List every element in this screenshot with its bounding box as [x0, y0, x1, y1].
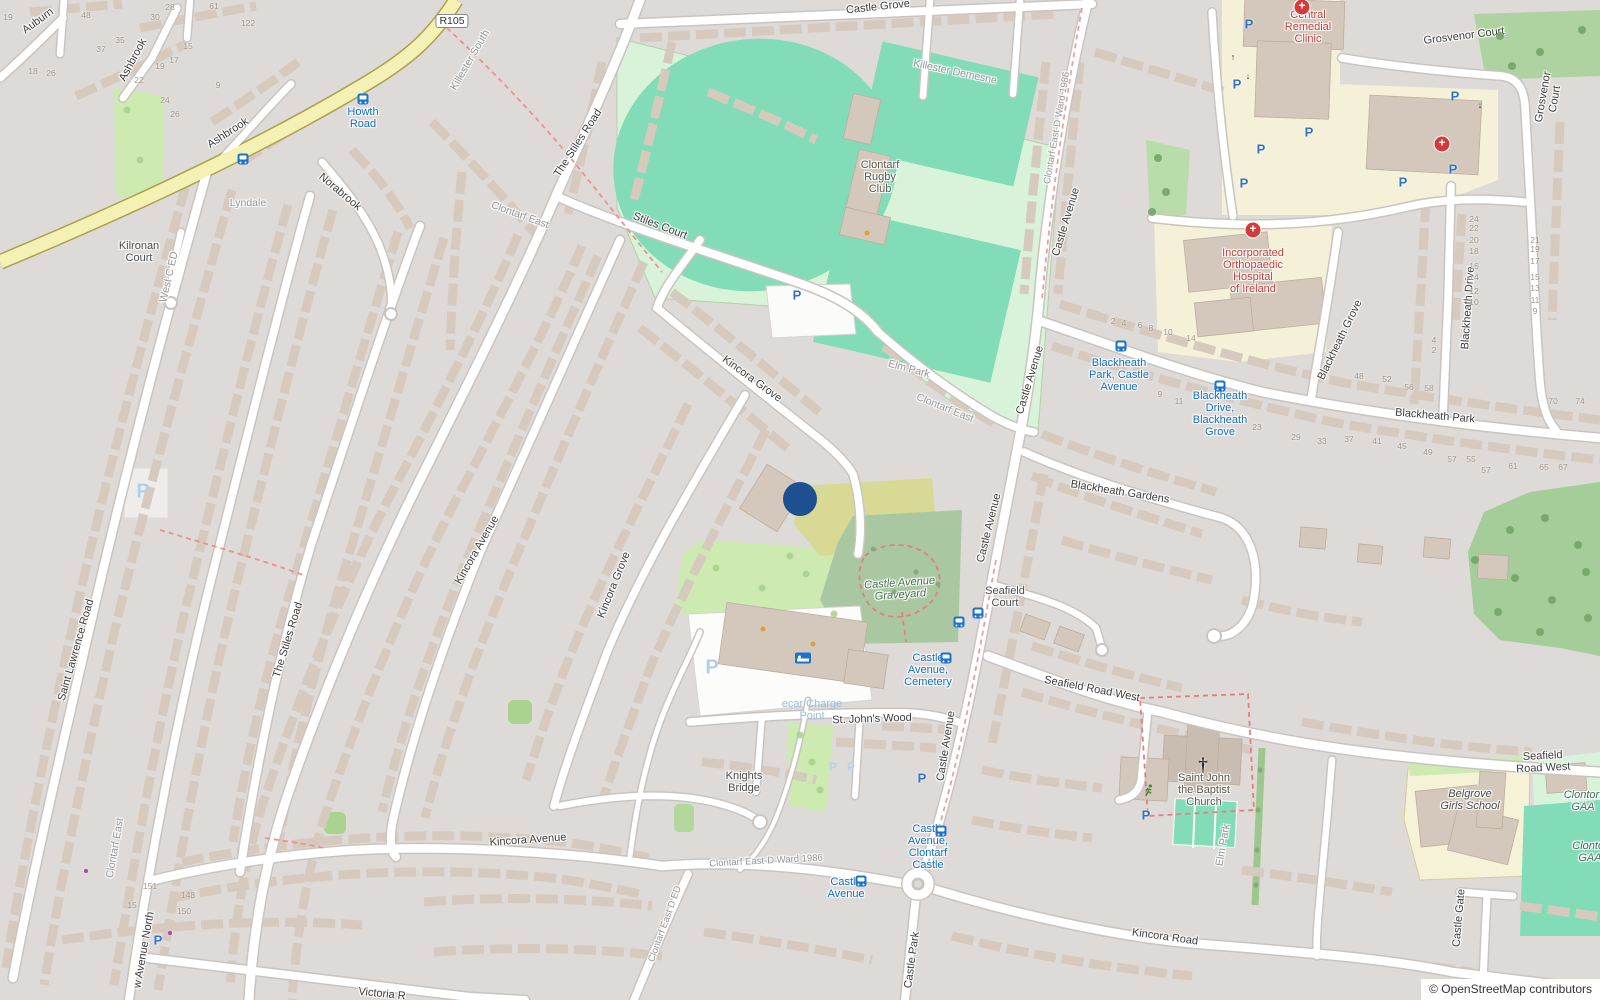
parking-icon: P — [1449, 162, 1458, 177]
house-number: 17 — [169, 55, 178, 65]
bush-icon — [803, 571, 810, 578]
house-number: 67 — [1558, 462, 1567, 472]
house-number: 24 — [1469, 214, 1478, 224]
bush-icon — [797, 732, 804, 739]
tree-icon — [1506, 526, 1514, 534]
road-label-grosvenor-court-side: Grosvenor Court — [1533, 71, 1566, 126]
treesm-icon — [914, 570, 919, 575]
house-number: 4 — [1122, 318, 1127, 328]
poi-label-clontarf-gaa-2: Clontor GAA — [1572, 840, 1600, 864]
bus-icon — [238, 154, 249, 165]
road-label-castle-avenue-4: Castle Avenue — [935, 710, 958, 782]
bush-icon — [817, 787, 824, 794]
bus-stop-label-blackheath-park: Blackheath Park, Castle Avenue — [1089, 357, 1149, 393]
house-number: 122 — [241, 18, 255, 28]
road-label-the-stiles-road-lower: The Stiles Road — [271, 601, 305, 679]
dot-orange-icon — [761, 627, 766, 632]
road-label-ashbrook-2: Ashbrook — [205, 115, 251, 150]
dot-purple-icon — [84, 869, 88, 873]
poi-label-ecar-charge-point: ecar Charge Point — [782, 698, 843, 722]
house-number: 19 — [1530, 244, 1539, 254]
house-number: 74 — [1575, 396, 1584, 406]
parking-icon: P — [793, 288, 802, 303]
house-number: 28 — [165, 2, 174, 12]
poi-label-belgrove-girls-school: Belgrove Girls School — [1440, 788, 1499, 812]
road-label-stiles-court: Stiles Court — [631, 210, 688, 242]
hospital-icon: + — [1434, 136, 1451, 153]
place-label-clontarf-east-upper: Clontarf East — [489, 199, 550, 231]
house-number: 48 — [81, 10, 90, 20]
dot-orange-icon — [865, 231, 870, 236]
house-number: 11 — [1175, 396, 1184, 406]
road-label-castle-grove: Castle Grove — [845, 0, 910, 16]
attribution[interactable]: © OpenStreetMap contributors — [1421, 979, 1600, 1000]
bus-icon — [973, 608, 984, 619]
road-label-kincora-grove-lower: Kincora Grove — [595, 550, 632, 620]
poi-label-clontarf-rugby-club: Clontarf Rugby Club — [861, 159, 900, 195]
house-number: 61 — [1508, 461, 1517, 471]
house-number: 49 — [1423, 447, 1432, 457]
parking-faint-icon: P — [136, 481, 149, 504]
road-label-blackheath-grove: Blackheath Grove — [1315, 298, 1364, 382]
house-number: 15 — [183, 41, 192, 51]
house-number: 56 — [1404, 382, 1413, 392]
road-label-kincora-avenue: Kincora Avenue — [489, 831, 567, 848]
tree-icon — [1584, 614, 1592, 622]
tree-icon — [1496, 32, 1504, 40]
road-label-kincora-road: Kincora Road — [1131, 926, 1199, 947]
house-number: 58 — [1424, 383, 1433, 393]
road-label-the-stiles-road-upper: The Stiles Road — [552, 107, 605, 179]
house-number: 22 — [134, 75, 143, 85]
house-number: 9 — [1533, 306, 1538, 316]
church-icon: † — [1198, 755, 1208, 777]
house-number: 6 — [1138, 320, 1143, 330]
road-label-castle-park: Castle Park — [902, 931, 922, 989]
road-label-blackheath-gardens: Blackheath Gardens — [1070, 478, 1170, 505]
house-number: 10 — [1163, 327, 1172, 337]
bus-stop-label-castle-avenue-clontarf-castle: Castle Avenue, Clontarf Castle — [908, 823, 948, 871]
house-number: 12 — [1469, 286, 1478, 296]
bush-icon — [759, 585, 766, 592]
house-number: 8 — [1149, 323, 1154, 333]
tree-icon — [1548, 596, 1556, 604]
parking-icon: P — [1451, 89, 1460, 104]
road-label-castle-avenue-3: Castle Avenue — [975, 492, 1004, 564]
place-label-lyndale: Lyndale — [230, 197, 266, 209]
arrow-down-icon: ↓ — [1478, 100, 1483, 110]
tree-icon — [1578, 26, 1586, 34]
house-number: 23 — [1252, 422, 1261, 432]
poi-label-saint-john-the-baptist-church: Saint John the Baptist Church — [1178, 772, 1230, 808]
parking-icon: P — [1305, 125, 1314, 140]
treesm-icon — [892, 590, 897, 595]
treesm-icon — [1254, 883, 1259, 888]
parking-icon: P — [918, 771, 927, 786]
tree-icon — [1536, 628, 1544, 636]
parking-faint-icon: P — [705, 657, 718, 680]
tree-icon — [1574, 541, 1582, 549]
house-number: 21 — [1530, 235, 1539, 245]
tree-icon — [1511, 574, 1519, 582]
road-label-elm-park: Elm Park — [1213, 823, 1232, 867]
tree-icon — [1508, 62, 1516, 70]
house-number: 10 — [1469, 297, 1478, 307]
boundary-label-ward-bottom: Clontarf East-D Ward 1986 — [709, 853, 823, 870]
place-label-knights-bridge: Knights Bridge — [726, 770, 763, 794]
parking-icon: P — [1257, 142, 1266, 157]
poi-label-clontarf-gaa-1: Clontorf GAA — [1564, 789, 1600, 813]
road-label-kincora-avenue-diag: Kincora Avenue — [453, 514, 502, 587]
treesm-icon — [1255, 848, 1260, 853]
parking-faint-sm-icon: P — [847, 760, 855, 774]
bus-stop-label-blackheath-drive: Blackheath Drive, Blackheath Grove — [1193, 390, 1247, 438]
treesm-icon — [871, 547, 876, 552]
road-label-norabrook: Norabrook — [316, 171, 363, 213]
dot-orange-icon — [811, 642, 816, 647]
road-label-saint-lawrence-road: Saint Lawrence Road — [56, 598, 97, 702]
bus-stop-label-castle-avenue-cemetery: Castle Avenue, Cemetery — [904, 652, 952, 688]
map-canvas[interactable]: AuburnAshbrookAshbrookNorabrookLyndaleKi… — [0, 0, 1600, 1000]
house-number: 9 — [216, 80, 221, 90]
house-number: 48 — [1354, 371, 1363, 381]
house-number: 9 — [1158, 389, 1163, 399]
hospital-icon: + — [1245, 222, 1262, 239]
bus-icon — [856, 876, 867, 887]
poi-label-castle-avenue-graveyard: Castle Avenue Graveyard — [864, 575, 936, 604]
place-label-killester-demesne: Killester Demesne — [912, 57, 998, 86]
house-number: 65 — [1539, 462, 1548, 472]
poi-label-orthopaedic-hospital: Incorporated Orthopaedic Hospital of Ire… — [1222, 247, 1284, 295]
place-label-killester-south: Killester South — [448, 28, 492, 93]
parking-icon: P — [1233, 77, 1242, 92]
road-label-auburn: Auburn — [20, 6, 56, 37]
house-number: 2 — [1111, 316, 1116, 326]
house-number: 18 — [1469, 246, 1478, 256]
parking-icon: P — [1399, 175, 1408, 190]
house-number: 22 — [1469, 223, 1478, 233]
house-number: 45 — [1397, 441, 1406, 451]
bus-icon — [936, 826, 947, 837]
bus-icon — [941, 653, 952, 664]
road-label-victoria: Victoria R — [358, 986, 406, 1000]
map-labels-layer: AuburnAshbrookAshbrookNorabrookLyndaleKi… — [0, 0, 1600, 1000]
road-label-kincora-grove-upper: Kincora Grove — [720, 353, 784, 404]
house-number: 26 — [46, 68, 55, 78]
bus-icon — [358, 94, 369, 105]
house-number: 41 — [1372, 436, 1381, 446]
boundary-label-ward-top: Clontarf East-D Ward 1986 — [1042, 71, 1073, 185]
house-number: 37 — [1344, 434, 1353, 444]
house-number: 13 — [1530, 283, 1539, 293]
treesm-icon — [936, 582, 941, 587]
road-label-avenue-north: w Avenue North — [131, 911, 156, 989]
house-number: 16 — [1469, 261, 1478, 271]
hospital-icon: + — [1294, 0, 1311, 16]
bush-icon — [137, 157, 144, 164]
house-number: 4 — [1432, 335, 1437, 345]
arrow-down-icon: ↓ — [1246, 71, 1251, 81]
bush-icon — [831, 611, 838, 618]
boundary-label-clontarf-east-d-ed: Clontarf East D ED — [646, 884, 684, 963]
house-number: 24 — [160, 95, 169, 105]
place-label-clontarf-east-bottom: Clontarf East — [104, 817, 126, 879]
house-number: 18 — [28, 66, 37, 76]
house-number: 37 — [96, 44, 105, 54]
house-number: 19 — [155, 61, 164, 71]
house-number: 26 — [170, 109, 179, 119]
tree-icon — [1471, 556, 1479, 564]
road-label-castle-avenue-top: Castle Avenue — [1050, 186, 1082, 257]
house-number: 61 — [209, 1, 218, 11]
arrow-up-icon: ↑ — [1231, 52, 1236, 62]
tree-icon — [1536, 48, 1544, 56]
place-label-seafield-court: Seafield Court — [985, 585, 1025, 609]
bush-icon — [787, 553, 794, 560]
place-label-kilronan-court: Kilronan Court — [119, 240, 159, 264]
house-number: 19 — [3, 12, 12, 22]
tree-icon — [1154, 154, 1162, 162]
house-number: 20 — [1469, 235, 1478, 245]
bed-icon — [795, 653, 811, 664]
place-label-clontarf-east-mid: Clontarf East — [915, 391, 976, 425]
road-label-blackheath-drive: Blackheath Drive — [1459, 266, 1477, 350]
treesm-icon — [1256, 808, 1261, 813]
house-number: 17 — [1530, 256, 1539, 266]
tree-icon — [1582, 568, 1590, 576]
place-label-west-c-ed: West C ED — [157, 250, 180, 303]
house-number: 14 — [1186, 333, 1195, 343]
bush-icon — [713, 565, 720, 572]
road-label-st-johns-wood: St. John's Wood — [832, 712, 912, 727]
house-number: 55 — [1466, 454, 1475, 464]
house-number: 150 — [177, 906, 191, 916]
house-number: 148 — [181, 890, 195, 900]
road-label-castle-gate: Castle Gate — [1450, 889, 1467, 948]
road-label-ashbrook-1: Ashbrook — [117, 37, 149, 84]
bush-icon — [809, 759, 816, 766]
house-number: 52 — [1382, 374, 1391, 384]
road-label-blackheath-park: Blackheath Park — [1395, 407, 1476, 426]
route-badge-r105: R105 — [435, 14, 468, 28]
house-number: 35 — [115, 35, 124, 45]
runner-icon — [1143, 784, 1156, 802]
tree-icon — [1541, 514, 1549, 522]
place-label-elm-park-pitch: Elm Park — [887, 358, 931, 381]
house-number: 14 — [1469, 272, 1478, 282]
house-number: 151 — [143, 881, 157, 891]
house-number: 57 — [1481, 465, 1490, 475]
house-number: 30 — [150, 12, 159, 22]
house-number: 70 — [1548, 396, 1557, 406]
tree-icon — [1494, 608, 1502, 616]
road-label-seafield-road-west-2: Seafield Road West — [1514, 749, 1572, 776]
tree-icon — [1148, 208, 1156, 216]
dot-purple-icon — [168, 931, 172, 935]
bus-icon — [1215, 381, 1226, 392]
treesm-icon — [1258, 768, 1263, 773]
bush-icon — [124, 107, 131, 114]
house-number: 11 — [1531, 295, 1540, 305]
house-number: 33 — [1317, 436, 1326, 446]
parking-icon: P — [1245, 17, 1254, 32]
road-label-seafield-road-west-1: Seafield Road West — [1043, 674, 1141, 704]
bus-stop-label-howth-road: Howth Road — [347, 106, 378, 130]
house-number: 29 — [1291, 432, 1300, 442]
poi-label-central-remedial-clinic: Central Remedial Clinic — [1285, 9, 1331, 45]
road-label-castle-avenue-2: Castle Avenue — [1014, 344, 1046, 415]
parking-icon: P — [1142, 808, 1151, 823]
house-number: 57 — [1447, 454, 1456, 464]
house-number: 15 — [127, 900, 136, 910]
house-number: 2 — [1432, 345, 1437, 355]
road-label-grosvenor-court-top: Grosvenor Court — [1423, 25, 1505, 47]
bus-icon — [1116, 341, 1127, 352]
house-number: 15 — [1530, 272, 1539, 282]
tree-icon — [1162, 188, 1170, 196]
parking-icon: P — [154, 933, 163, 948]
bus-icon — [954, 617, 965, 628]
parking-icon: P — [1240, 176, 1249, 191]
bus-stop-label-castle-avenue: Castle Avenue — [827, 876, 864, 900]
parking-faint-sm-icon: P — [829, 760, 837, 774]
